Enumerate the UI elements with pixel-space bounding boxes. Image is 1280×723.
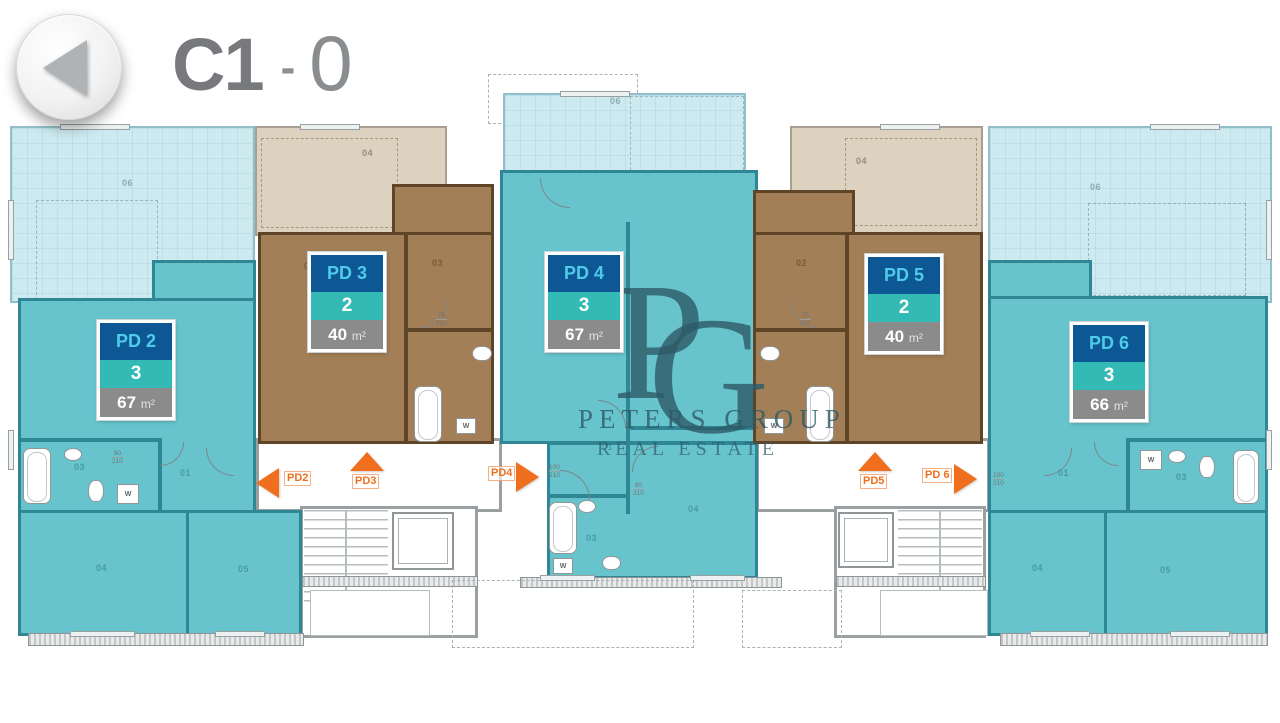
terrace-pd3-dashed-outline — [261, 138, 398, 228]
room-number: 03 — [432, 258, 443, 268]
entrance-label-pd2[interactable]: PD2 — [284, 471, 311, 486]
bathtub — [1233, 450, 1259, 504]
window — [8, 430, 14, 470]
door-dimension: 90210 — [112, 450, 123, 466]
washer: W — [764, 418, 784, 434]
entrance-label-pd5[interactable]: PD5 — [860, 474, 887, 489]
unit-badge-pd2[interactable]: PD 2 3 67 m² — [97, 320, 175, 420]
sink — [64, 448, 82, 461]
unit-area: 40 m² — [311, 320, 383, 349]
washer: W — [1140, 450, 1162, 470]
room-number: 06 — [1090, 182, 1101, 192]
wall — [626, 222, 630, 514]
room-number: 06 — [610, 96, 621, 106]
entrance-arrow-pd2-icon[interactable] — [256, 468, 279, 498]
wall — [753, 328, 849, 332]
washer: W — [456, 418, 476, 434]
door-dimension: 100210 — [993, 472, 1004, 488]
room-number: 04 — [362, 148, 373, 158]
window — [690, 575, 745, 581]
sink — [578, 500, 596, 513]
unit-badge-pd4[interactable]: PD 4 3 67 m² — [545, 252, 623, 352]
unit-area: 67 m² — [548, 320, 620, 349]
entry-porch-right — [880, 590, 988, 636]
unit-area: 66 m² — [1073, 390, 1145, 419]
washer: W — [553, 558, 573, 574]
building-label: C1 — [172, 22, 263, 107]
back-button[interactable] — [16, 14, 122, 120]
unit-room-count: 3 — [100, 360, 172, 388]
door-dimension: 75210 — [436, 312, 447, 328]
room-number: 04 — [856, 156, 867, 166]
toilet — [602, 556, 621, 570]
room-number: 01 — [602, 442, 613, 452]
floorplan-page: C1 - 0 — [0, 0, 1280, 723]
unit-pd5-room-upper — [753, 190, 855, 236]
terrace-pd5-dashed-outline — [845, 138, 977, 226]
room-number: 05 — [238, 564, 249, 574]
entrance-arrow-pd5-icon[interactable] — [858, 452, 892, 471]
unit-badge-pd3[interactable]: PD 3 2 40 m² — [308, 252, 386, 352]
room-number: 02 — [796, 258, 807, 268]
room-number: 05 — [1160, 565, 1171, 575]
unit-pd6-bedroom-04 — [988, 510, 1108, 636]
window — [1266, 200, 1272, 260]
window — [215, 631, 265, 637]
wall — [404, 328, 494, 332]
wall — [404, 232, 408, 444]
elevator-left — [392, 512, 454, 570]
door-dimension: 80210 — [633, 482, 644, 498]
unit-pd6-bedroom-05 — [1104, 510, 1268, 636]
room-number: 04 — [96, 563, 107, 573]
ground-dashed-outline — [742, 590, 842, 648]
wall — [1126, 438, 1268, 442]
bathtub — [806, 386, 834, 442]
entry-porch-left — [310, 590, 430, 636]
room-number: 01 — [180, 468, 191, 478]
wall — [626, 426, 758, 430]
window — [1150, 124, 1220, 130]
bathtub — [414, 386, 442, 442]
unit-name: PD 4 — [548, 255, 620, 292]
room-number: 04 — [1032, 563, 1043, 573]
unit-badge-pd6[interactable]: PD 6 3 66 m² — [1070, 322, 1148, 422]
ground-dashed-outline — [452, 580, 694, 648]
window — [1030, 631, 1090, 637]
door-dimension: 75210 — [800, 312, 811, 328]
wall — [18, 438, 162, 442]
toilet — [1199, 456, 1215, 478]
unit-area: 67 m² — [100, 388, 172, 417]
washer: W — [117, 484, 139, 504]
room-number: 01 — [1058, 468, 1069, 478]
unit-pd2-bedroom-04 — [18, 510, 190, 636]
unit-room-count: 3 — [1073, 362, 1145, 390]
unit-area: 40 m² — [868, 322, 940, 351]
exterior-wall — [836, 576, 986, 587]
window — [70, 631, 135, 637]
room-number: 03 — [586, 533, 597, 543]
room-number: 03 — [1176, 472, 1187, 482]
window — [880, 124, 940, 130]
window — [60, 124, 130, 130]
title-dash: - — [281, 43, 296, 93]
sink — [1168, 450, 1186, 463]
room-number: 04 — [688, 504, 699, 514]
entrance-arrow-pd4-icon[interactable] — [516, 462, 539, 492]
entrance-label-pd3[interactable]: PD3 — [352, 474, 379, 489]
entrance-label-pd6[interactable]: PD 6 — [922, 468, 952, 483]
terrace-right-dashed-outline — [1088, 203, 1246, 296]
room-number: 03 — [74, 462, 85, 472]
terrace-left-dashed-outline — [36, 200, 158, 300]
entrance-arrow-pd6-icon[interactable] — [954, 464, 977, 494]
window — [300, 124, 360, 130]
unit-room-count: 2 — [311, 292, 383, 320]
window — [8, 200, 14, 260]
window — [1266, 430, 1272, 470]
wall — [1126, 438, 1130, 514]
page-title: C1 - 0 — [172, 18, 353, 109]
back-arrow-icon — [43, 40, 87, 96]
door-dimension: 100210 — [549, 464, 560, 480]
room-number: 06 — [122, 178, 133, 188]
unit-badge-pd5[interactable]: PD 5 2 40 m² — [865, 254, 943, 354]
bathtub — [549, 502, 577, 554]
window — [1170, 631, 1230, 637]
bathtub — [23, 448, 51, 504]
elevator-right — [838, 512, 894, 568]
wall — [845, 232, 849, 444]
toilet — [472, 346, 492, 361]
window — [540, 575, 595, 581]
toilet — [88, 480, 104, 502]
unit-pd3-room-upper — [392, 184, 494, 236]
unit-name: PD 5 — [868, 257, 940, 294]
entrance-arrow-pd3-icon[interactable] — [350, 452, 384, 471]
unit-room-count: 3 — [548, 292, 620, 320]
floor-label: 0 — [309, 18, 352, 109]
entrance-label-pd4[interactable]: PD4 — [488, 466, 515, 481]
unit-room-count: 2 — [868, 294, 940, 322]
toilet — [760, 346, 780, 361]
unit-name: PD 3 — [311, 255, 383, 292]
unit-name: PD 6 — [1073, 325, 1145, 362]
unit-name: PD 2 — [100, 323, 172, 360]
